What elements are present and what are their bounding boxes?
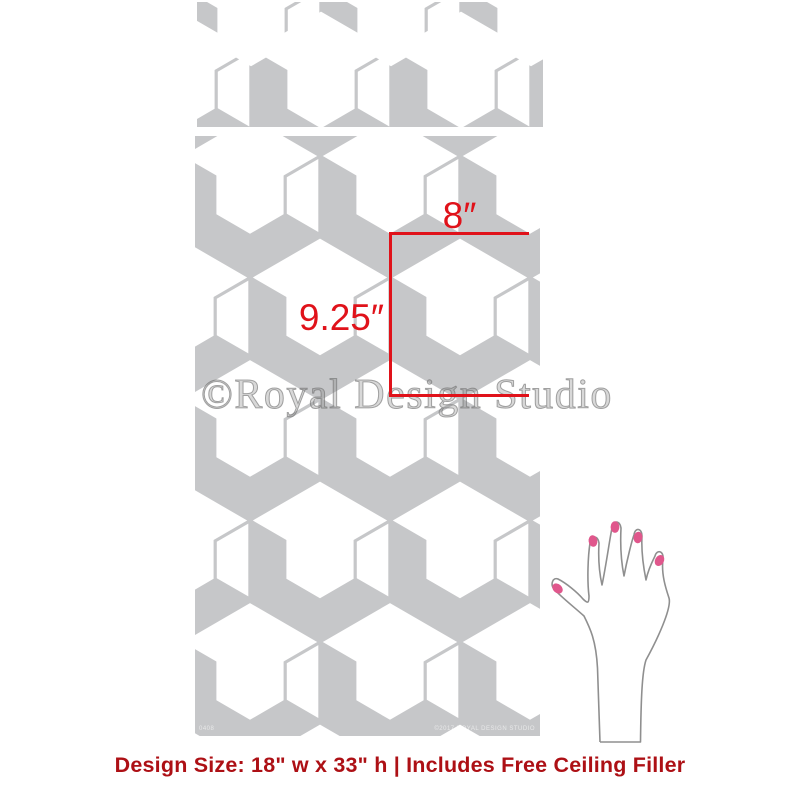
hand-scale-icon: [540, 505, 705, 745]
hexagon-cube-pattern: [197, 2, 543, 127]
design-size-caption: Design Size: 18" w x 33" h | Includes Fr…: [0, 753, 800, 778]
width-dimension-label: 8″: [390, 197, 529, 234]
nail: [611, 521, 620, 533]
bottom-dimension-line: [389, 394, 529, 397]
panel-sku-text: 0408: [199, 726, 214, 732]
height-dimension-label: 9.25″: [299, 299, 384, 336]
panel-copyright-text: ©2017 ROYAL DESIGN STUDIO: [434, 726, 535, 732]
product-image: 0408 ©2017 ROYAL DESIGN STUDIO ©Royal De…: [0, 0, 800, 800]
height-dimension-line: [389, 232, 392, 397]
ceiling-filler-panel: [197, 2, 543, 127]
hand-outline: [552, 522, 669, 742]
